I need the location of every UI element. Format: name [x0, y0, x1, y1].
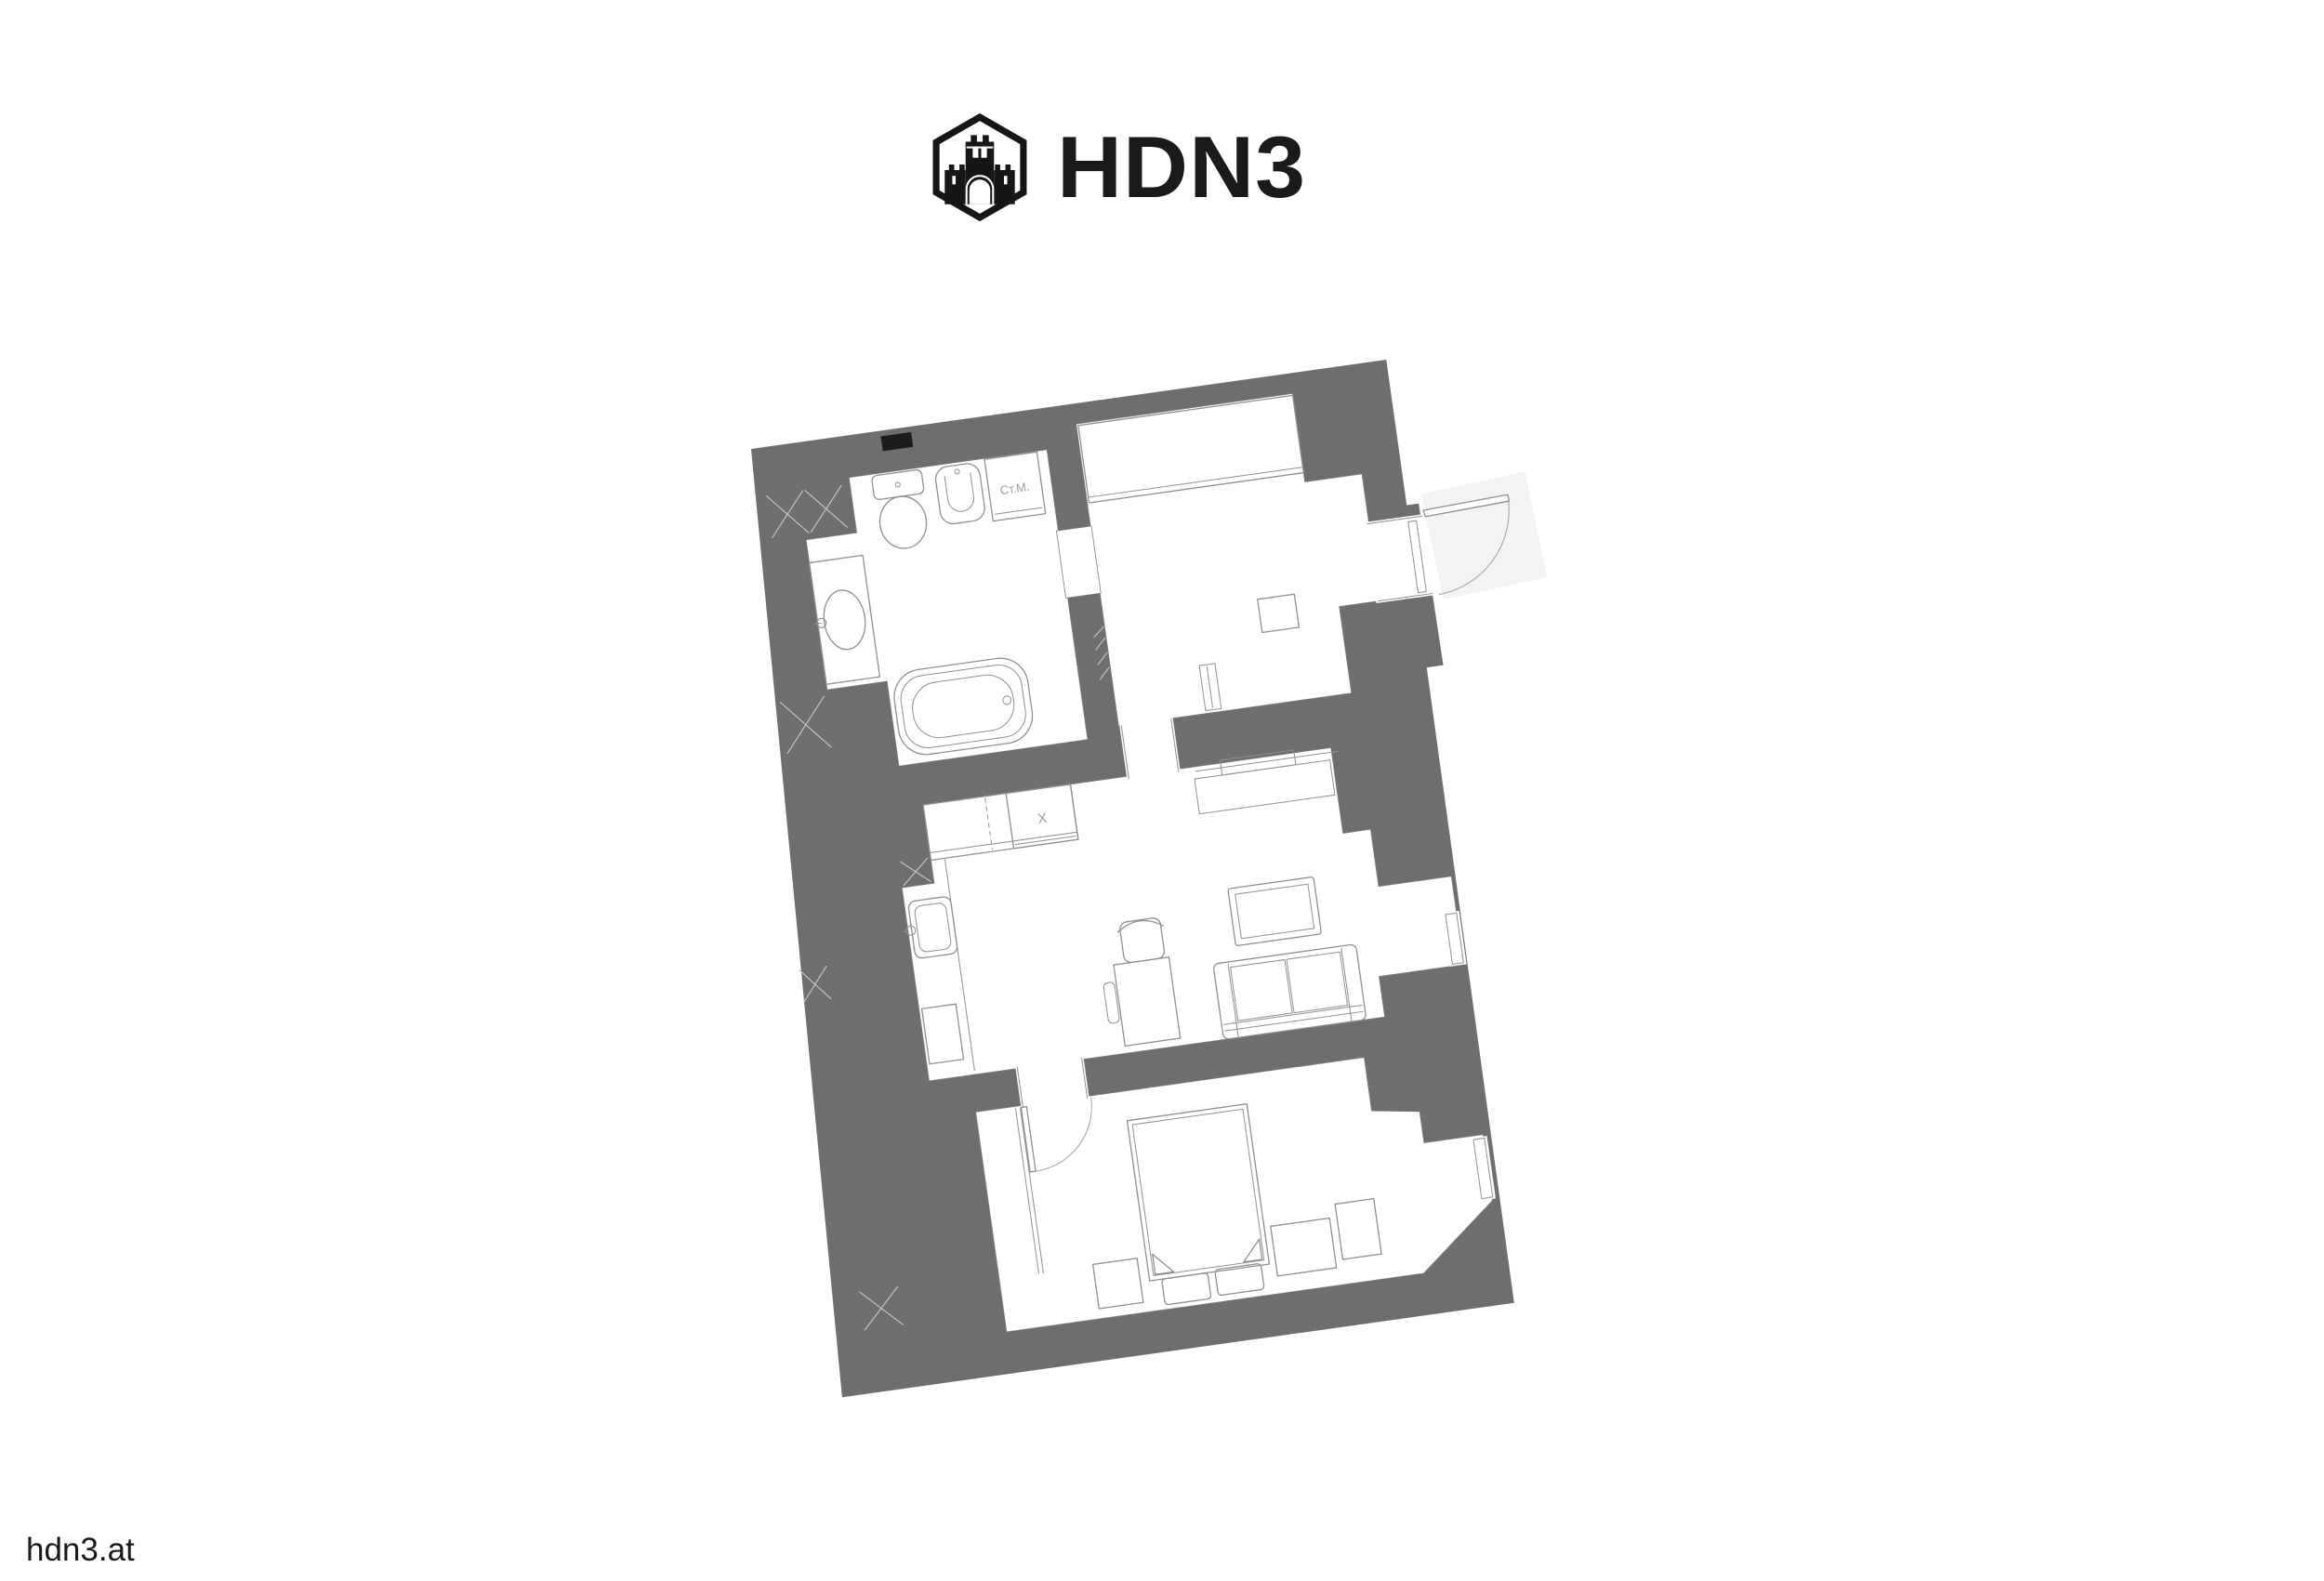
entrance-landing [1420, 470, 1549, 600]
doorway-bedroom2 [1015, 1056, 1089, 1110]
floor-plan: Ст.М. [0, 0, 2324, 1581]
site-footer-label: hdn3.at [26, 1532, 135, 1569]
doorway-bedroom1-living [1119, 715, 1182, 783]
page: { "logo": { "brand": "HDN3", "icon": "ca… [0, 0, 2324, 1581]
